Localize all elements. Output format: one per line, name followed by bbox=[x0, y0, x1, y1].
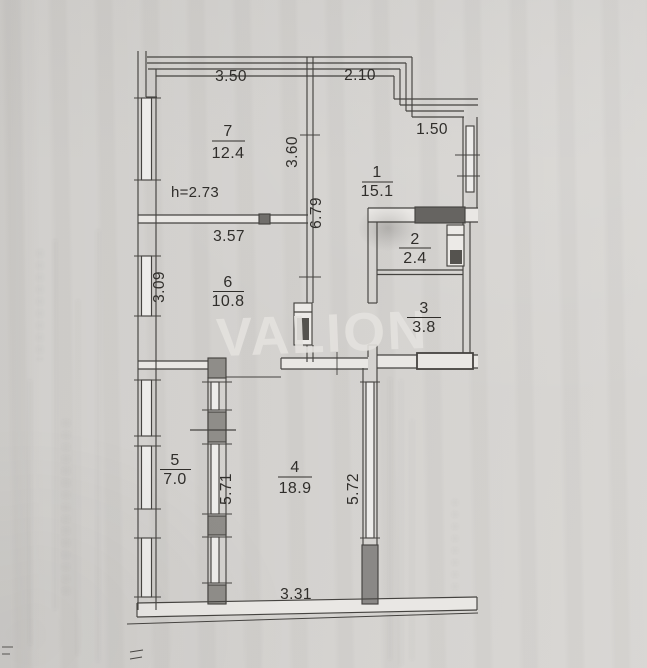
dim-room5-right-height: 5.71 bbox=[218, 473, 235, 505]
valion-watermark: VALION bbox=[215, 300, 429, 368]
dim-right-top: 1.50 bbox=[416, 121, 448, 138]
dim-hall-height: 6.79 bbox=[308, 197, 325, 229]
room-5-number: 5 bbox=[170, 452, 179, 469]
room-2-number: 2 bbox=[410, 231, 419, 248]
floorplan-svg: VALION 3.50 2.10 1.50 3.57 3.31 3.60 6.7… bbox=[0, 0, 647, 668]
room-4-number: 4 bbox=[290, 459, 299, 476]
room-7-number: 7 bbox=[223, 123, 232, 140]
dim-hall-upper-height: 3.60 bbox=[284, 136, 301, 168]
room-5-area: 7.0 bbox=[163, 471, 186, 488]
room-1-number: 1 bbox=[372, 164, 381, 181]
room-5-label: 5 7.0 bbox=[160, 452, 191, 488]
dim-top-left: 3.50 bbox=[215, 68, 247, 85]
ceiling-height-note: h=2.73 bbox=[171, 184, 219, 201]
room-1-area: 15.1 bbox=[361, 183, 394, 200]
dim-top-right: 2.10 bbox=[344, 67, 376, 84]
wall-pier bbox=[362, 545, 378, 604]
room-6-area: 10.8 bbox=[212, 293, 245, 310]
room-4-label: 4 18.9 bbox=[278, 459, 312, 497]
scanned-floor-plan-page: VALION 3.50 2.10 1.50 3.57 3.31 3.60 6.7… bbox=[0, 0, 647, 668]
room-1-label: 1 15.1 bbox=[361, 164, 394, 200]
room-6-number: 6 bbox=[223, 274, 232, 291]
room-3-area: 3.8 bbox=[412, 319, 435, 336]
room-7-area: 12.4 bbox=[212, 145, 245, 162]
room-3-number: 3 bbox=[419, 300, 428, 317]
dim-room4-right-height: 5.72 bbox=[345, 473, 362, 505]
room-4-area: 18.9 bbox=[279, 480, 312, 497]
dim-room6-left-height: 3.09 bbox=[151, 271, 168, 303]
scan-smudge bbox=[358, 205, 418, 251]
room-2-area: 2.4 bbox=[403, 250, 426, 267]
room4-right-wall bbox=[360, 357, 380, 604]
dim-room6-width: 3.57 bbox=[213, 228, 245, 245]
left-exterior-wall bbox=[134, 51, 161, 610]
room-6-label: 6 10.8 bbox=[212, 274, 245, 310]
room1-right-wall bbox=[455, 117, 480, 208]
dim-bottom-width: 3.31 bbox=[280, 586, 312, 603]
room-7-label: 7 12.4 bbox=[212, 123, 245, 162]
room2-door-leaf bbox=[450, 250, 462, 264]
